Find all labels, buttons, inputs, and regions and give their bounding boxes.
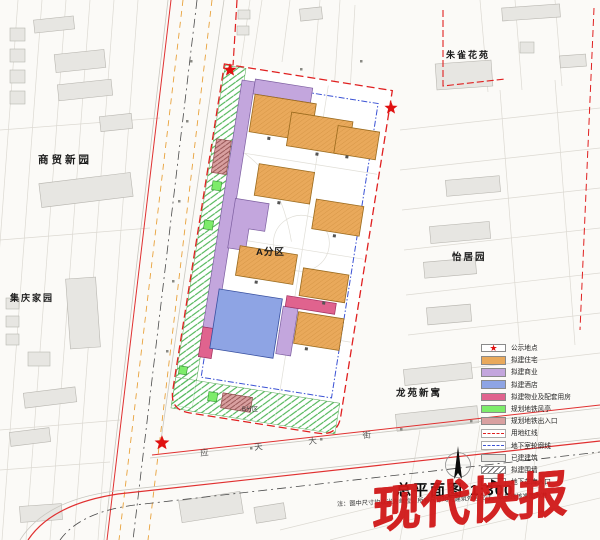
estate-label-east: 怡居园 <box>452 249 487 263</box>
legend-item-hotel: 拟建酒店 <box>481 379 599 391</box>
red-line-swatch <box>481 429 506 438</box>
estate-label-northwest: 商贸新园 <box>38 152 92 167</box>
wind-pavilion-swatch <box>481 405 506 414</box>
estate-label-west: 集庆家园 <box>10 291 54 304</box>
legend-item-existing: 已建建筑 <box>481 452 599 464</box>
estate-label-southeast: 龙苑新寓 <box>396 385 442 399</box>
existing-building-swatch <box>481 454 506 463</box>
commercial-swatch <box>481 368 506 377</box>
legend-item-property: 拟建物业及配套用房 <box>481 391 599 403</box>
legend-item-red-line: 用地红线 <box>481 427 599 439</box>
property-swatch <box>481 393 506 402</box>
zone-a-label: A分区 <box>256 244 285 258</box>
zone-b-label: B分区 <box>242 404 258 413</box>
star-icon: ★ <box>481 344 506 353</box>
metro-entrance-swatch <box>481 417 506 426</box>
legend-item-basement-outline: 地下室轮廓线 <box>481 440 599 452</box>
basement-line-swatch <box>481 441 506 450</box>
hotel-building <box>210 289 283 358</box>
estate-label-northeast: 朱雀花苑 <box>446 48 490 61</box>
legend-item-residential: 拟建住宅 <box>481 354 599 366</box>
legend-item-announcement: ★ 公示地点 <box>481 342 599 354</box>
legend-item-wind-pavilion: 规划地铁风亭 <box>481 403 599 415</box>
legend-item-commercial: 拟建商业 <box>481 366 599 378</box>
site-plan-page: 商贸新园 集庆家园 朱雀花苑 怡居园 龙苑新寓 A分区 B分区 应天大街 ★ 公… <box>0 0 600 540</box>
legend-item-metro-entrance: 规划地铁出入口 <box>481 415 599 427</box>
hotel-swatch <box>481 380 506 389</box>
residential-swatch <box>481 356 506 365</box>
